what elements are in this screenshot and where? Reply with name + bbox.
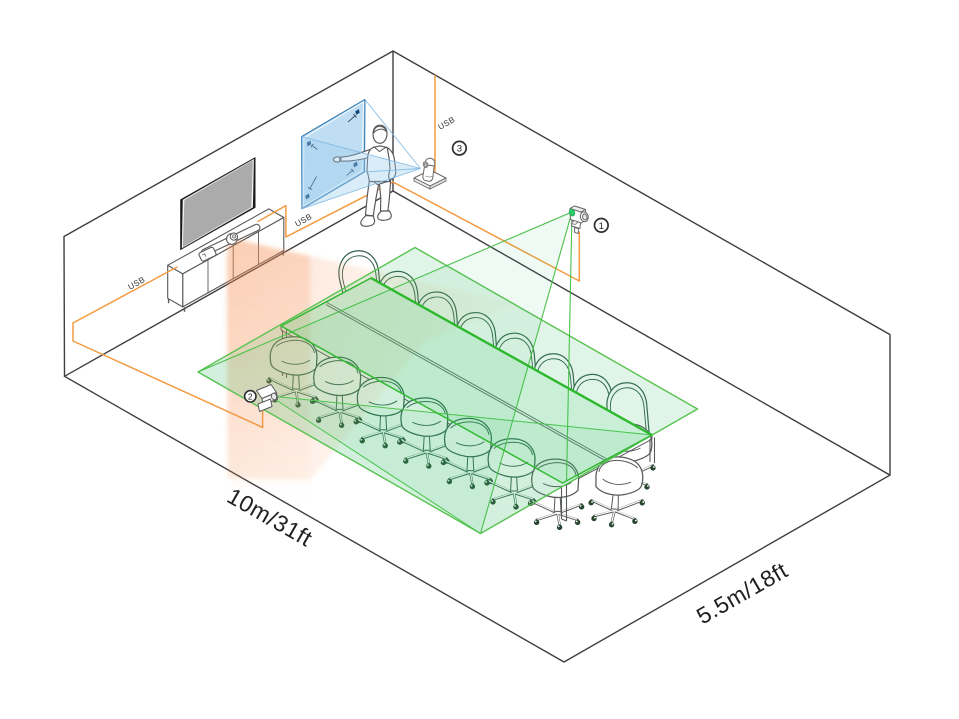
svg-text:2: 2 [248, 391, 253, 401]
svg-text:3: 3 [457, 144, 462, 155]
svg-text:1: 1 [599, 221, 604, 232]
